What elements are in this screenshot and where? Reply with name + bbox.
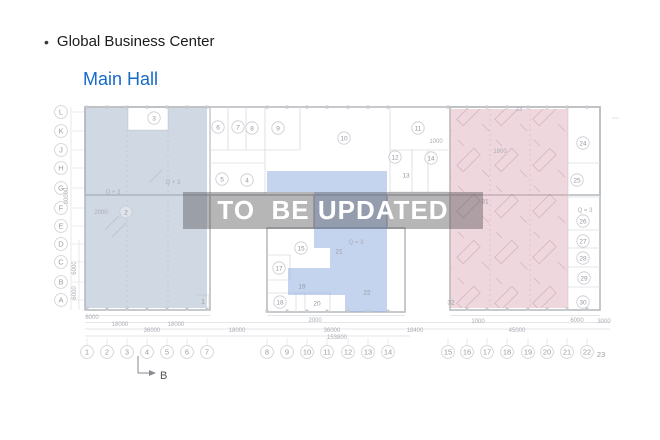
dimension-label: 3000 bbox=[597, 319, 611, 325]
col-axis-label: 13 bbox=[364, 348, 372, 357]
room-number: 9 bbox=[276, 125, 280, 132]
col-axis-label: 4 bbox=[145, 348, 149, 357]
col-axis-label: 5 bbox=[165, 348, 169, 357]
column-marker bbox=[546, 308, 549, 311]
watermark-band: TO BE UPDATED bbox=[183, 192, 483, 229]
row-axis-label: E bbox=[58, 222, 63, 231]
column-marker bbox=[506, 106, 509, 109]
column-marker bbox=[186, 106, 189, 109]
room-number: 6 bbox=[216, 124, 220, 131]
room-number: 5 bbox=[220, 176, 224, 183]
column-marker bbox=[566, 308, 569, 311]
col-axis-label: 16 bbox=[463, 348, 471, 357]
row-axis-label: H bbox=[58, 164, 63, 173]
column-marker bbox=[86, 308, 89, 311]
column-marker bbox=[486, 308, 489, 311]
room-number: 24 bbox=[579, 140, 587, 147]
column-marker bbox=[527, 106, 530, 109]
column-marker bbox=[387, 106, 390, 109]
column-marker bbox=[206, 308, 209, 311]
dimension-label: 1000 bbox=[471, 319, 485, 325]
column-marker bbox=[146, 106, 149, 109]
dimension-label: 6000 bbox=[72, 286, 78, 300]
row-axis-label: D bbox=[58, 240, 64, 249]
column-marker bbox=[447, 106, 450, 109]
row-axis-label: K bbox=[58, 127, 63, 136]
column-marker bbox=[286, 310, 289, 313]
row-axis-label: L bbox=[59, 108, 63, 117]
page: • Global Business Center Main Hall bbox=[0, 0, 660, 440]
row-axis-label: A bbox=[58, 296, 63, 305]
column-marker bbox=[466, 308, 469, 311]
dimension-label: Q = 3 bbox=[349, 240, 365, 246]
column-marker bbox=[126, 308, 129, 311]
room-number: 15 bbox=[297, 245, 305, 252]
dimension-label: 18000 bbox=[112, 322, 129, 328]
room-number: 17 bbox=[275, 265, 283, 272]
row-axis-label: B bbox=[58, 278, 63, 287]
col-axis-label: 9 bbox=[285, 348, 289, 357]
column-marker bbox=[486, 106, 489, 109]
dimension-label: 45000 bbox=[509, 328, 526, 334]
dimension-label: 36000 bbox=[144, 328, 161, 334]
room-number: 4 bbox=[245, 177, 249, 184]
dimension-label: 6000 bbox=[72, 261, 78, 275]
room-number: 25 bbox=[573, 177, 581, 184]
column-marker bbox=[106, 106, 109, 109]
col-axis-label: 20 bbox=[543, 348, 551, 357]
room-number: 14 bbox=[427, 155, 435, 162]
col-axis-label: 1 bbox=[85, 348, 89, 357]
col-axis-label: 7 bbox=[205, 348, 209, 357]
column-marker bbox=[347, 106, 350, 109]
room-number: 8 bbox=[250, 125, 254, 132]
column-marker bbox=[166, 308, 169, 311]
dimension-label: 18000 bbox=[229, 328, 246, 334]
dimension-label: 2000 bbox=[94, 210, 108, 216]
room-number: 20 bbox=[313, 300, 321, 307]
room-number: 3 bbox=[152, 115, 156, 122]
column-marker bbox=[306, 310, 309, 313]
dimension-label: Q = 3 bbox=[578, 208, 594, 214]
section-marker-label: B bbox=[160, 370, 167, 382]
col-axis-label: 12 bbox=[344, 348, 352, 357]
col-axis-label: 21 bbox=[563, 348, 571, 357]
col-axis-label: 8 bbox=[265, 348, 269, 357]
row-axis-label: F bbox=[59, 204, 64, 213]
dimension-label: 153800 bbox=[327, 335, 348, 341]
room-number: 13 bbox=[402, 172, 410, 179]
room-number: 22 bbox=[363, 289, 371, 296]
col-axis-label: 23 bbox=[597, 350, 605, 359]
dimension-label: 18000 bbox=[168, 322, 185, 328]
dimension-label: Q + 3 bbox=[166, 180, 182, 186]
room-number: 2 bbox=[124, 209, 128, 216]
room-number: 7 bbox=[236, 124, 240, 131]
room-number: 32 bbox=[447, 299, 455, 306]
col-axis-label: 10 bbox=[303, 348, 311, 357]
column-marker bbox=[527, 308, 530, 311]
room-number: 12 bbox=[391, 154, 399, 161]
column-marker bbox=[146, 308, 149, 311]
column-marker bbox=[586, 106, 589, 109]
dimension-label: 18400 bbox=[407, 328, 424, 334]
dimension-label: 1800 bbox=[493, 149, 507, 155]
column-marker bbox=[326, 310, 329, 313]
row-axis-label: J bbox=[59, 146, 63, 155]
column-marker bbox=[466, 106, 469, 109]
col-axis-label: 2 bbox=[105, 348, 109, 357]
column-marker bbox=[106, 308, 109, 311]
row-axis-label: G bbox=[58, 184, 64, 193]
column-marker bbox=[367, 106, 370, 109]
dimension-label: 36000 bbox=[324, 328, 341, 334]
column-marker bbox=[387, 310, 390, 313]
column-marker bbox=[306, 106, 309, 109]
column-marker bbox=[266, 106, 269, 109]
column-marker bbox=[186, 308, 189, 311]
room-number: 1 bbox=[201, 298, 205, 305]
dimension-label: 1000 bbox=[429, 139, 443, 145]
column-marker bbox=[506, 308, 509, 311]
col-axis-label: 11 bbox=[323, 348, 331, 357]
column-marker bbox=[166, 106, 169, 109]
dimension-label: 2000 bbox=[308, 318, 322, 324]
col-axis-label: 6 bbox=[185, 348, 189, 357]
room-number: 29 bbox=[580, 275, 588, 282]
dimension-label: 6000 bbox=[85, 315, 99, 321]
section-arrow-icon bbox=[149, 370, 156, 376]
watermark-text: TO BE UPDATED bbox=[217, 195, 448, 226]
room-number: 10 bbox=[340, 135, 348, 142]
dimension-label: 6000 bbox=[570, 318, 584, 324]
column-marker bbox=[286, 106, 289, 109]
room-number: 11 bbox=[415, 125, 422, 132]
room-number: 30 bbox=[579, 299, 587, 306]
column-marker bbox=[586, 308, 589, 311]
room-number: 26 bbox=[579, 218, 587, 225]
room-number: 21 bbox=[335, 248, 343, 255]
column-marker bbox=[266, 310, 269, 313]
col-axis-label: 22 bbox=[583, 348, 591, 357]
column-marker bbox=[86, 106, 89, 109]
col-axis-label: 18 bbox=[503, 348, 511, 357]
col-axis-label: 19 bbox=[524, 348, 532, 357]
column-marker bbox=[546, 106, 549, 109]
room-number: 19 bbox=[298, 283, 306, 290]
column-marker bbox=[326, 106, 329, 109]
dimension-label: 23 bbox=[516, 107, 523, 113]
col-axis-label: 15 bbox=[444, 348, 452, 357]
column-marker bbox=[367, 310, 370, 313]
dimension-label: Q + 3 bbox=[106, 190, 122, 196]
row-axis-label: C bbox=[58, 258, 64, 267]
col-axis-label: 14 bbox=[384, 348, 392, 357]
column-marker bbox=[347, 310, 350, 313]
col-axis-label: 17 bbox=[483, 348, 491, 357]
room-number: 28 bbox=[579, 255, 587, 262]
section-marker: B bbox=[138, 356, 167, 382]
room-number: 27 bbox=[579, 238, 587, 245]
col-axis-label: 3 bbox=[125, 348, 129, 357]
room-number: 18 bbox=[276, 299, 284, 306]
column-marker bbox=[566, 106, 569, 109]
column-marker bbox=[126, 106, 129, 109]
column-marker bbox=[206, 106, 209, 109]
